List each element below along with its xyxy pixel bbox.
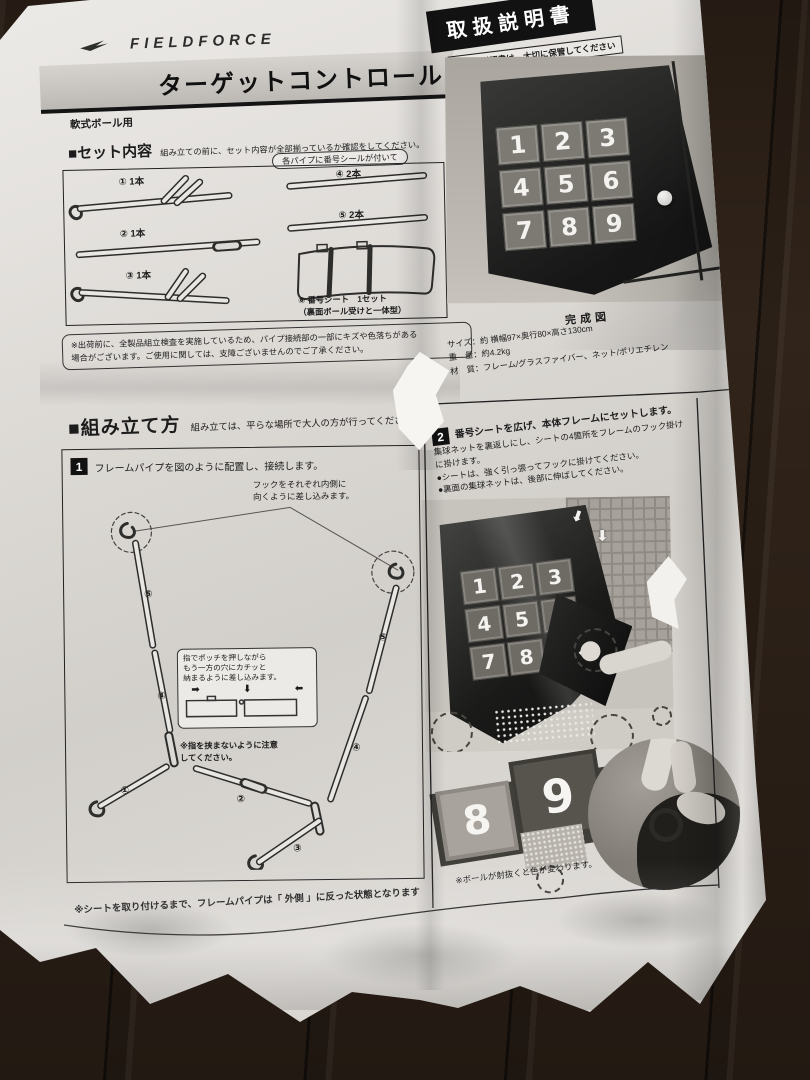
arrow-left-icon: ⬅ — [295, 683, 304, 694]
part-qty: 2本 — [346, 169, 361, 180]
number-tile: 7 — [469, 642, 509, 680]
hook-ring — [649, 808, 683, 842]
part-label: ③ 1本 — [125, 267, 151, 282]
arrow-down-icon: ⬇ — [243, 683, 252, 694]
step1-text: フレームパイプを図のように配置し、接続します。 — [94, 455, 323, 475]
part-qty: 1本 — [136, 270, 151, 281]
pipe-label: ④ — [157, 691, 166, 702]
number-tile: 3 — [585, 118, 630, 159]
finger-caution-line2: してください。 — [180, 751, 278, 764]
connector-sketch — [183, 694, 301, 719]
part-label: ① 1本 — [119, 173, 145, 188]
sheet-attachment-photo: 1 2 3 4 5 6 7 8 ⬇ ⬇ ⬅ — [422, 496, 674, 752]
connector-instruction-box: 指でポッチを押しながら もう一方の穴にカチッと 納まるように差し込みます。 ➡ … — [177, 647, 318, 728]
fieldforce-swoosh-icon — [78, 36, 121, 53]
number-tile: 2 — [497, 562, 537, 600]
part-number: ④ — [335, 169, 343, 180]
corner-arrow-icon: ⬇ — [596, 527, 609, 545]
assembly-heading: ■組み立て方 — [68, 410, 181, 441]
part-number: ⑤ — [338, 210, 346, 221]
number-tile: 5 — [502, 600, 542, 638]
part-number: ① — [119, 177, 127, 188]
pipe-label: ② — [237, 794, 246, 805]
hook-direction-note: フックをそれぞれ内側に 向くように差し込みます。 — [253, 479, 354, 504]
number-tile: 9 — [592, 203, 637, 244]
number-tile: 4 — [464, 604, 504, 642]
brand-row: FIELDFORCE — [78, 31, 276, 55]
ball-type-label: 軟式ボール用 — [70, 115, 133, 132]
sheet-item-label: ⑥ 番号シート 1セット （裏面ボール受けと一体型） — [298, 292, 406, 318]
part-subnote: （裏面ボール受けと一体型） — [298, 305, 406, 317]
set-contents-box: ① 1本 ② 1本 ③ 1本 ④ 2本 ⑤ 2本 ⑥ 番号シート 1セット （裏… — [62, 162, 447, 326]
pipe-label: ⑤ — [144, 589, 153, 600]
outward-bend-note: ※シートを取り付けるまで、フレームパイプは「 外側 」に反った状態となります — [74, 884, 420, 916]
part-qty: 2本 — [349, 210, 364, 221]
set-contents-heading: ■セット内容 — [68, 140, 153, 164]
part-qty: 1本 — [130, 228, 145, 239]
brand-name: FIELDFORCE — [130, 31, 276, 53]
number-tile: 6 — [589, 161, 634, 202]
photo-scene: FIELDFORCE ターゲットコントロール 軟式ボール用 取扱説明書 本取扱説… — [0, 0, 810, 1080]
number-tile: 7 — [503, 210, 548, 251]
step1-header: 1 フレームパイプを図のように配置し、接続します。 — [70, 455, 323, 475]
finger-caution-line1: ※指を挟まないように注意 — [180, 740, 278, 753]
leader-circle — [652, 706, 672, 726]
part-number: ② — [120, 229, 128, 240]
assembly-lead: 組み立ては、平らな場所で大人の方が行ってください — [190, 412, 413, 434]
part-label: ② 1本 — [120, 225, 146, 240]
pipe-label: ① — [120, 785, 129, 796]
manual-paper: FIELDFORCE ターゲットコントロール 軟式ボール用 取扱説明書 本取扱説… — [0, 0, 810, 1080]
number-tile: 2 — [541, 121, 586, 162]
number-tile: 4 — [499, 168, 544, 209]
pipe-label: ⑤ — [379, 632, 388, 643]
number-panel: 8 — [435, 781, 519, 862]
hook-detail-inset — [588, 738, 740, 890]
part-label: ④ 2本 — [335, 166, 361, 181]
title-banner: ターゲットコントロール — [39, 50, 455, 114]
pipe-label: ④ — [352, 743, 361, 754]
part-name: 番号シート 1セット — [307, 293, 386, 305]
step1-box: 1 フレームパイプを図のように配置し、接続します。 フックをそれぞれ内側に 向く… — [61, 445, 424, 883]
step1-number-badge: 1 — [70, 458, 87, 475]
product-title: ターゲットコントロール — [157, 55, 454, 105]
arrow-right-icon: ➡ — [191, 684, 200, 695]
pipe-label: ③ — [293, 843, 302, 854]
number-tile: 1 — [460, 567, 500, 605]
hand — [581, 641, 601, 661]
number-tile: 1 — [496, 125, 541, 166]
number-tile: 5 — [544, 164, 589, 205]
hook-highlight-circle — [430, 711, 473, 752]
finger — [668, 740, 697, 795]
number-grid: 1 2 3 4 5 6 7 8 9 — [496, 118, 635, 252]
number-tile: 8 — [547, 207, 592, 248]
assembly-header: ■組み立て方 組み立ては、平らな場所で大人の方が行ってください — [68, 402, 413, 441]
part-label: ⑤ 2本 — [338, 207, 364, 222]
finger-caution: ※指を挟まないように注意 してください。 — [180, 740, 278, 765]
part-qty: 1本 — [129, 176, 144, 187]
spec-list: サイズ：約 横幅97×奥行80×高さ130cm 重 量：約4.2kg 材 質：フ… — [446, 314, 669, 378]
part-number: ③ — [126, 271, 134, 282]
part-number: ⑥ — [298, 295, 305, 305]
step2-block: 2 番号シートを広げ、本体フレームにセットします。 集球ネットを裏返しにし、シー… — [431, 395, 737, 497]
number-tile: 3 — [535, 557, 575, 595]
